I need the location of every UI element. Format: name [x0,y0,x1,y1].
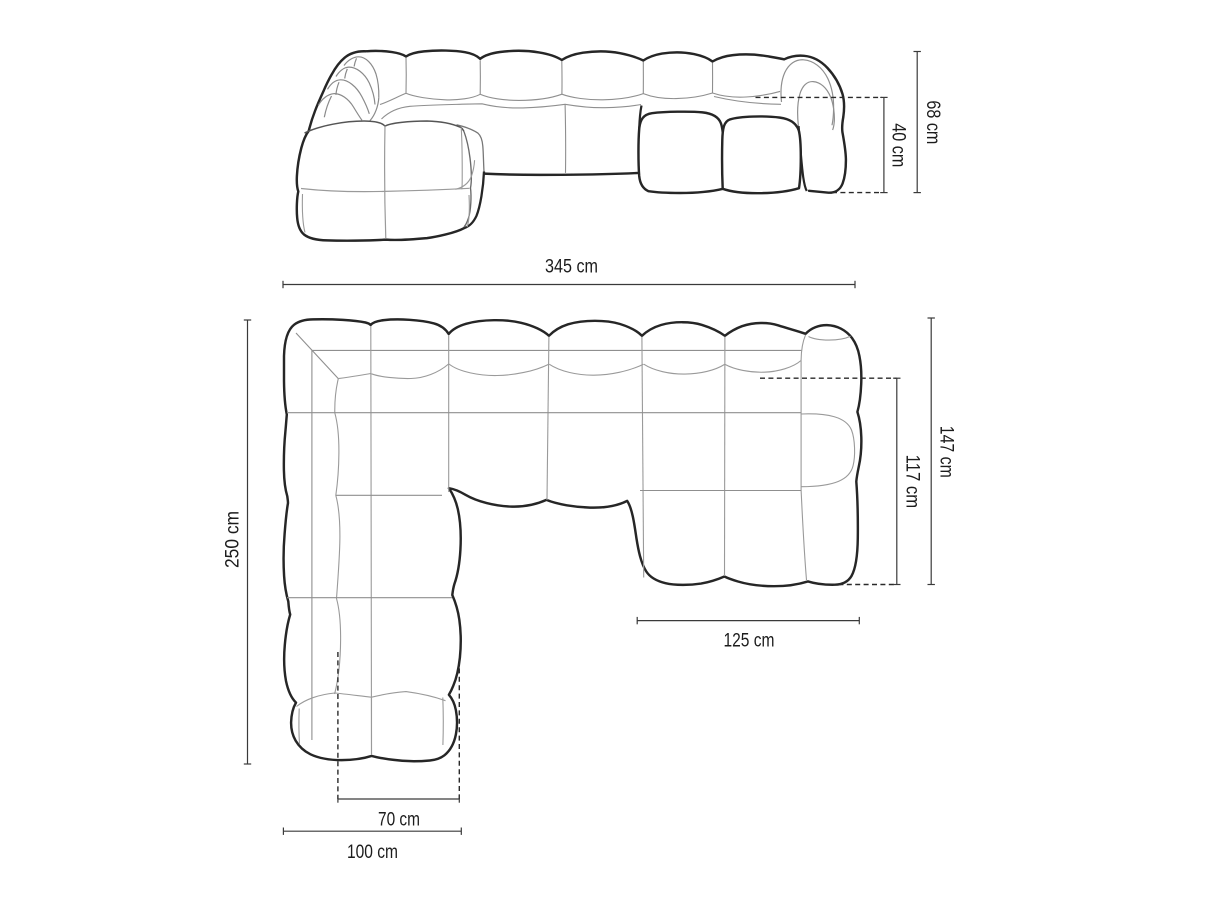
svg-text:40 cm: 40 cm [888,123,909,167]
svg-text:250 cm: 250 cm [223,511,244,568]
svg-text:100 cm: 100 cm [347,842,398,863]
svg-text:345 cm: 345 cm [545,256,598,277]
svg-text:68 cm: 68 cm [922,100,943,144]
svg-text:117 cm: 117 cm [902,455,923,509]
svg-text:70 cm: 70 cm [378,810,420,831]
svg-text:147 cm: 147 cm [935,426,956,478]
svg-text:125 cm: 125 cm [724,631,775,652]
